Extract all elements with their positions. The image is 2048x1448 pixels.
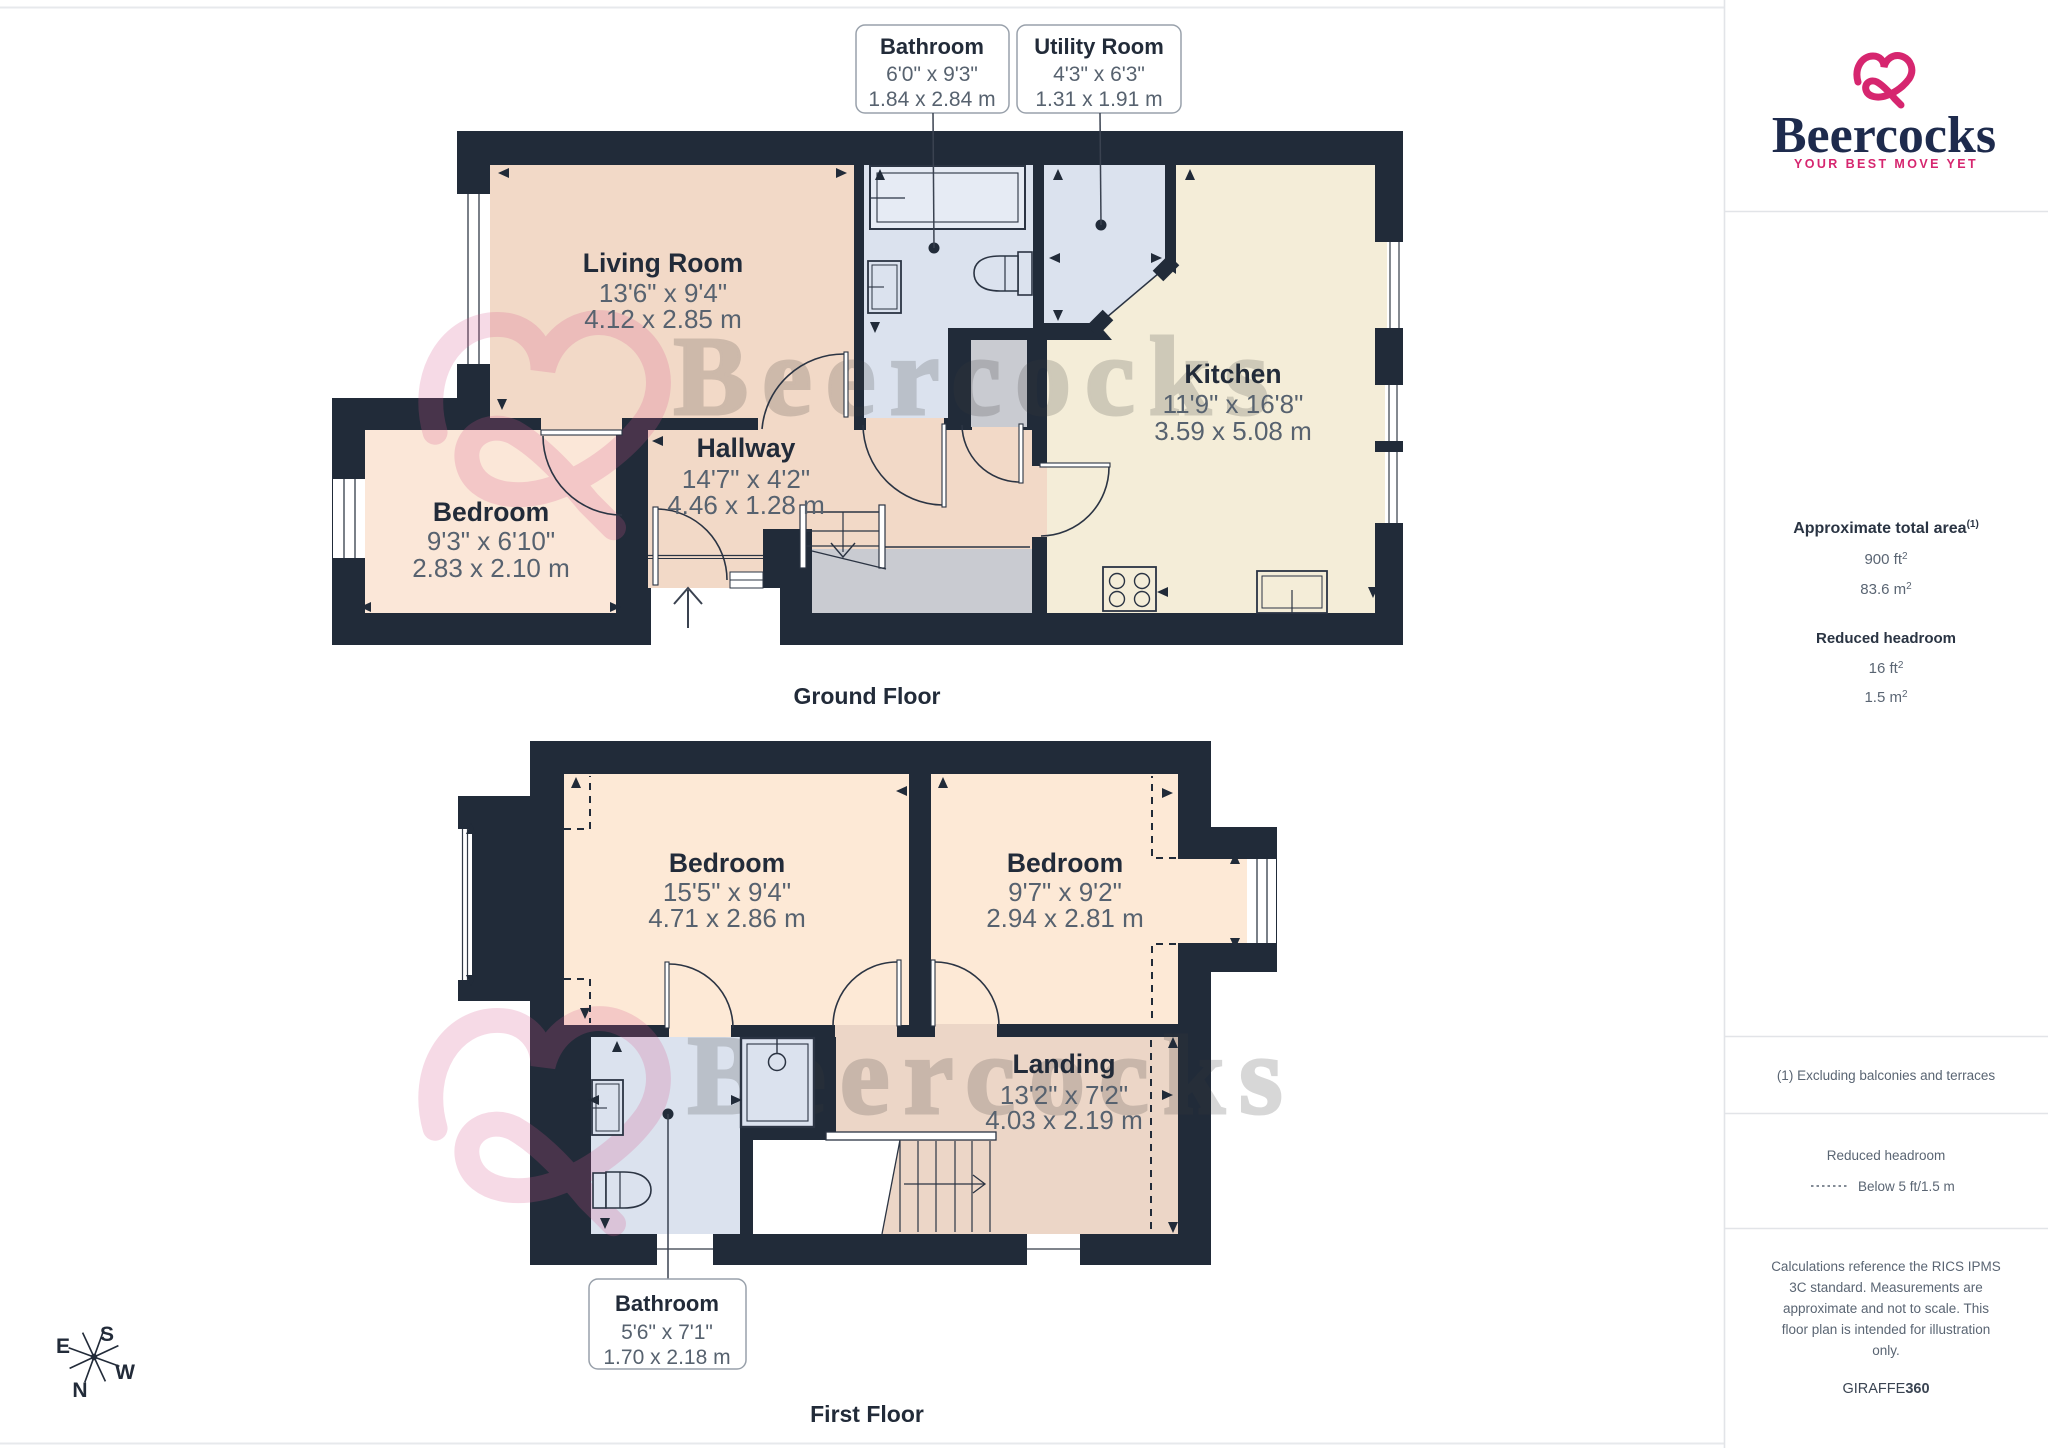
svg-text:floor plan is intended for ill: floor plan is intended for illustration — [1782, 1322, 1991, 1337]
svg-text:Bedroom: Bedroom — [433, 497, 549, 527]
svg-text:3.59 x 5.08 m: 3.59 x 5.08 m — [1154, 416, 1312, 446]
svg-text:83.6 m2: 83.6 m2 — [1860, 581, 1912, 598]
svg-text:9'3" x 6'10": 9'3" x 6'10" — [427, 526, 555, 556]
svg-text:S: S — [100, 1323, 114, 1346]
svg-text:only.: only. — [1872, 1343, 1900, 1358]
svg-text:Kitchen: Kitchen — [1184, 359, 1281, 389]
svg-text:GIRAFFE360: GIRAFFE360 — [1842, 1381, 1929, 1397]
svg-text:Calculations reference the RIC: Calculations reference the RICS IPMS — [1771, 1259, 2001, 1274]
svg-text:5'6" x 7'1": 5'6" x 7'1" — [621, 1321, 713, 1344]
svg-text:YOUR BEST MOVE YET: YOUR BEST MOVE YET — [1794, 157, 1978, 171]
svg-text:Reduced headroom: Reduced headroom — [1816, 630, 1956, 647]
svg-text:6'0" x 9'3": 6'0" x 9'3" — [886, 63, 978, 86]
svg-text:4'3" x 6'3": 4'3" x 6'3" — [1053, 63, 1145, 86]
svg-text:First Floor: First Floor — [810, 1401, 924, 1427]
svg-text:11'9" x 16'8": 11'9" x 16'8" — [1163, 389, 1304, 419]
svg-text:N: N — [72, 1379, 87, 1402]
svg-text:Bathroom: Bathroom — [880, 34, 984, 59]
svg-text:Beercocks: Beercocks — [1772, 107, 1996, 164]
svg-text:2.94 x 2.81 m: 2.94 x 2.81 m — [986, 903, 1144, 933]
svg-text:Bathroom: Bathroom — [615, 1291, 719, 1316]
svg-text:Landing: Landing — [1012, 1049, 1115, 1079]
svg-text:Living Room: Living Room — [583, 248, 743, 278]
svg-text:900 ft2: 900 ft2 — [1864, 551, 1908, 568]
svg-text:1.70 x 2.18 m: 1.70 x 2.18 m — [603, 1346, 730, 1369]
svg-text:4.46 x 1.28 m: 4.46 x 1.28 m — [667, 490, 825, 520]
svg-text:E: E — [56, 1335, 70, 1358]
svg-text:Bedroom: Bedroom — [669, 848, 785, 878]
svg-text:2.83 x 2.10 m: 2.83 x 2.10 m — [412, 553, 570, 583]
svg-text:4.71 x 2.86 m: 4.71 x 2.86 m — [648, 903, 806, 933]
svg-text:Bedroom: Bedroom — [1007, 848, 1123, 878]
svg-text:1.5 m2: 1.5 m2 — [1864, 689, 1908, 706]
svg-text:Reduced headroom: Reduced headroom — [1827, 1148, 1946, 1163]
svg-text:4.03 x 2.19 m: 4.03 x 2.19 m — [985, 1105, 1143, 1135]
svg-text:approximate and not to scale.: approximate and not to scale. This — [1783, 1301, 1989, 1316]
svg-text:Below 5 ft/1.5 m: Below 5 ft/1.5 m — [1858, 1179, 1955, 1194]
svg-text:3C standard. Measurements are: 3C standard. Measurements are — [1789, 1280, 1983, 1295]
svg-text:(1) Excluding balconies and te: (1) Excluding balconies and terraces — [1777, 1068, 1996, 1083]
svg-text:Hallway: Hallway — [697, 433, 796, 463]
svg-text:W: W — [115, 1361, 135, 1384]
svg-text:4.12 x 2.85 m: 4.12 x 2.85 m — [584, 304, 742, 334]
svg-text:Approximate total area(1): Approximate total area(1) — [1793, 519, 1979, 537]
svg-text:Ground Floor: Ground Floor — [794, 683, 941, 709]
svg-text:Utility Room: Utility Room — [1034, 34, 1164, 59]
svg-text:1.31 x 1.91 m: 1.31 x 1.91 m — [1035, 88, 1162, 111]
svg-text:1.84 x 2.84 m: 1.84 x 2.84 m — [868, 88, 995, 111]
